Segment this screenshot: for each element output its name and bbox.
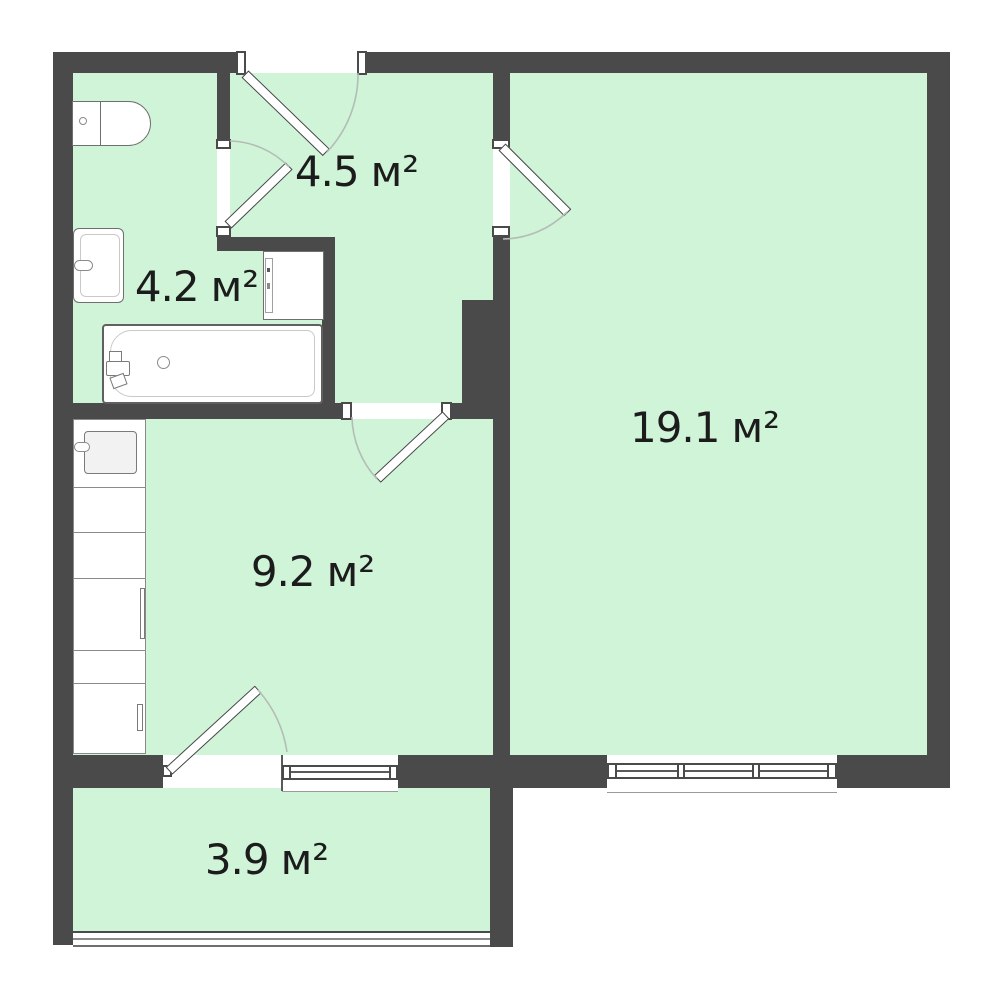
room-area-value: 3.9 — [205, 835, 269, 884]
wall-left — [53, 52, 73, 945]
room-area-unit: м² — [281, 835, 330, 884]
kitchen-window-cap-right — [389, 765, 398, 780]
counter-segment3 — [73, 650, 146, 684]
wall-living-divider-bottom — [493, 237, 510, 755]
kitchen-jamb-left — [341, 402, 352, 420]
living-room-window-cap-left — [607, 763, 617, 779]
oven-icon — [73, 578, 146, 651]
kitchen-faucet — [74, 442, 90, 452]
bathroom-jamb-top — [216, 139, 231, 149]
wall-right — [927, 52, 950, 788]
wall-top-left — [53, 52, 245, 73]
bathtub-drain — [157, 356, 170, 369]
room-area-value: 4.5 — [295, 147, 359, 196]
wall-bathroom-door — [217, 73, 230, 140]
room-label-living-room: 19.1м² — [595, 407, 815, 449]
living-room-jamb-bottom — [492, 226, 510, 237]
toilet-bowl — [100, 101, 151, 146]
room-label-hallway: 4.5м² — [247, 151, 467, 193]
room-area-value: 4.2 — [135, 262, 199, 311]
room-area-unit: м² — [731, 403, 780, 452]
bathtub-inner — [110, 330, 315, 397]
living-room-window-glass-line — [611, 770, 833, 772]
room-label-balcony: 3.9м² — [157, 839, 377, 881]
room-area-unit: м² — [211, 262, 260, 311]
entrance-jamb-left — [236, 51, 246, 75]
counter-segment — [73, 487, 146, 533]
kitchen-window-cap-left — [282, 765, 291, 780]
wall-kitchen-bottom-left — [73, 755, 163, 788]
cabinet-handle — [137, 704, 143, 731]
wall-balcony-right — [490, 788, 513, 947]
living-room-window-cap-right — [827, 763, 837, 779]
room-area-unit: м² — [327, 547, 376, 596]
entrance-jamb-right — [357, 51, 367, 75]
kitchen-door-opening — [352, 403, 442, 419]
room-label-bathroom: 4.2м² — [87, 266, 307, 308]
toilet-button — [79, 117, 87, 125]
room-area-value: 9.2 — [251, 547, 315, 596]
wall-bottom-middle — [398, 755, 607, 788]
wall-living-divider-top — [493, 73, 510, 140]
floor-plan: 4.5м² 4.2м² 19.1м² 9.2м² 3.9м² — [0, 0, 1000, 1000]
room-label-kitchen: 9.2м² — [203, 551, 423, 593]
kitchen-window-glass-line — [286, 771, 394, 773]
cabinet-icon — [73, 683, 146, 754]
living-room-window-mullion-right — [752, 763, 760, 779]
room-area-value: 19.1 — [630, 403, 720, 452]
wall-bottom-right — [837, 755, 950, 788]
wall-bathroom-divider — [217, 237, 335, 251]
toilet-icon — [72, 101, 101, 146]
room-area-unit: м² — [371, 147, 420, 196]
counter-segment2 — [73, 532, 146, 579]
bathroom-door-opening — [217, 148, 230, 227]
wall-top-right — [358, 52, 950, 73]
bathroom-jamb-bottom — [216, 226, 231, 237]
balcony-glazing-line — [73, 938, 490, 940]
oven-handle — [140, 588, 145, 639]
kitchen-sink-icon — [84, 431, 137, 474]
living-room-window-mullion-left — [677, 763, 685, 779]
wall-kitchen-top-left — [73, 403, 344, 419]
